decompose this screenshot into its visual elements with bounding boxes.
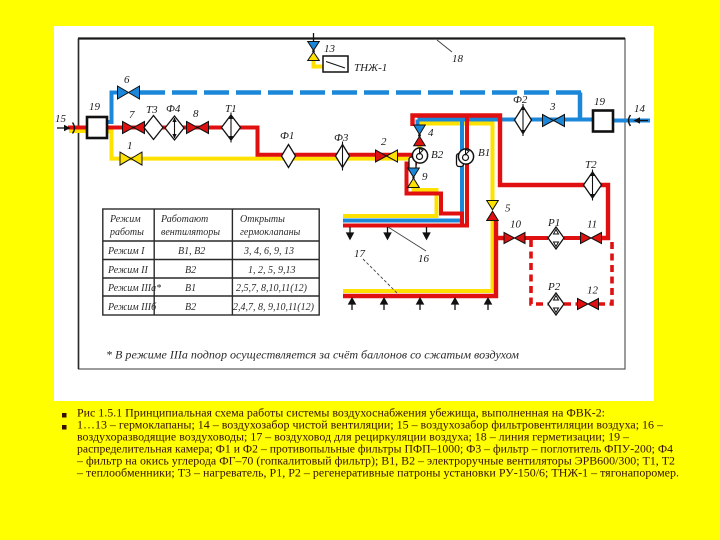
svg-text:Режим IIIб: Режим IIIб — [107, 302, 157, 313]
svg-text:15: 15 — [55, 113, 67, 125]
svg-text:Ф1: Ф1 — [280, 130, 294, 142]
svg-text:Работают: Работают — [160, 214, 208, 225]
svg-text:Ф2: Ф2 — [513, 94, 528, 106]
svg-text:3, 4, 6, 9, 13: 3, 4, 6, 9, 13 — [243, 246, 294, 257]
svg-text:13: 13 — [324, 43, 336, 55]
svg-text:Открыты: Открыты — [240, 214, 285, 225]
svg-text:17: 17 — [354, 248, 366, 260]
svg-text:гермоклапаны: гермоклапаны — [240, 227, 301, 238]
svg-text:В2: В2 — [431, 149, 444, 161]
svg-text:14: 14 — [634, 103, 646, 115]
svg-text:Режим II: Режим II — [107, 265, 148, 276]
svg-text:Режим: Режим — [109, 214, 141, 225]
svg-text:Режим IIIа*: Режим IIIа* — [107, 283, 161, 294]
svg-text:В1, В2: В1, В2 — [178, 246, 205, 257]
svg-text:10: 10 — [510, 219, 522, 231]
svg-text:1, 2, 5, 9,13: 1, 2, 5, 9,13 — [248, 265, 296, 276]
svg-text:Р1: Р1 — [547, 217, 560, 229]
svg-text:В1: В1 — [185, 283, 196, 294]
svg-text:* В режиме IIIа подпор осущест: * В режиме IIIа подпор осуществляется за… — [106, 350, 520, 362]
svg-text:Ф3: Ф3 — [334, 132, 349, 144]
svg-text:8: 8 — [193, 108, 199, 120]
svg-text:19: 19 — [89, 101, 101, 113]
svg-text:– теплообменники; Т3 – нагрева: – теплообменники; Т3 – нагреватель, Р1, … — [76, 466, 679, 480]
svg-text:В2: В2 — [185, 265, 196, 276]
svg-text:12: 12 — [587, 285, 599, 297]
svg-text:Т3: Т3 — [146, 104, 158, 116]
svg-text:7: 7 — [129, 109, 135, 121]
svg-text:9: 9 — [422, 171, 428, 183]
svg-text:Ф4: Ф4 — [166, 103, 181, 115]
svg-text:работы: работы — [109, 227, 144, 238]
svg-text:6: 6 — [124, 74, 130, 86]
svg-text:ТНЖ-1: ТНЖ-1 — [354, 62, 387, 74]
svg-text:Т2: Т2 — [585, 159, 597, 171]
svg-text:5: 5 — [505, 203, 511, 215]
svg-text:Режим I: Режим I — [107, 246, 145, 257]
svg-text:16: 16 — [418, 253, 430, 265]
svg-text:2: 2 — [381, 136, 387, 148]
svg-text:2,5,7, 8,10,11(12): 2,5,7, 8,10,11(12) — [236, 283, 308, 294]
svg-text:19: 19 — [594, 96, 606, 108]
svg-text:11: 11 — [587, 219, 597, 231]
svg-text:4: 4 — [428, 127, 434, 139]
svg-text:вентиляторы: вентиляторы — [161, 227, 220, 238]
svg-text:18: 18 — [452, 53, 464, 65]
svg-text:В2: В2 — [185, 302, 196, 313]
svg-text:3: 3 — [549, 101, 556, 113]
svg-text:Т1: Т1 — [225, 103, 237, 115]
svg-text:2,4,7, 8, 9,10,11(12): 2,4,7, 8, 9,10,11(12) — [233, 302, 315, 313]
svg-text:1: 1 — [127, 140, 133, 152]
svg-text:Р2: Р2 — [547, 281, 561, 293]
svg-text:В1: В1 — [478, 147, 490, 159]
